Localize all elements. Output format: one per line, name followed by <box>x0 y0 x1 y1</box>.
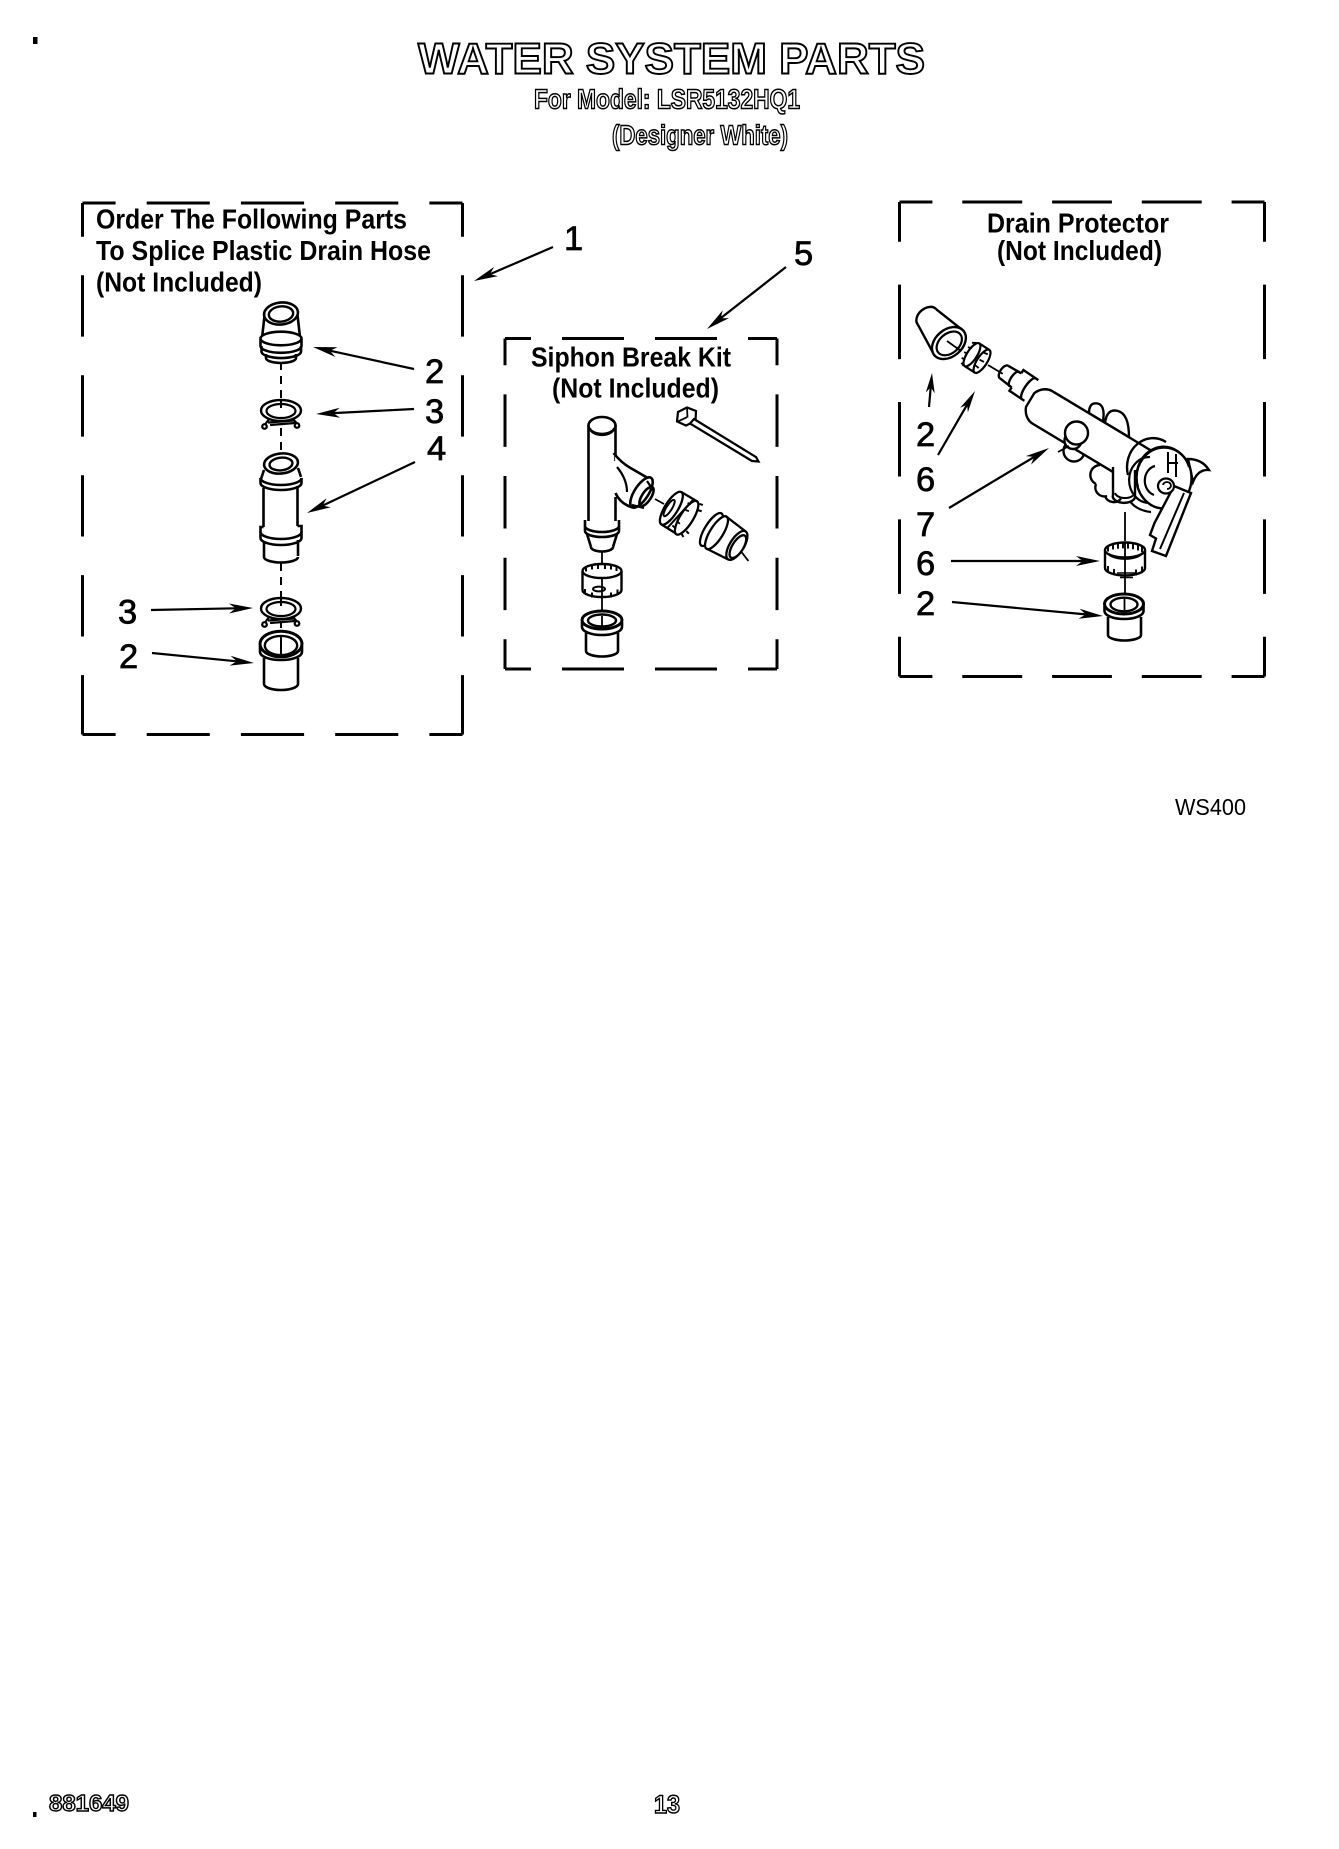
svg-text:7: 7 <box>916 506 935 544</box>
svg-text:For Model: LSR5132HQ1: For Model: LSR5132HQ1 <box>534 84 800 115</box>
svg-text:Order The Following Parts: Order The Following Parts <box>96 204 407 235</box>
svg-text:13: 13 <box>654 1791 680 1819</box>
svg-text:3: 3 <box>425 393 444 431</box>
svg-text:881649: 881649 <box>49 1790 129 1816</box>
svg-text:2: 2 <box>119 638 138 676</box>
svg-text:3: 3 <box>118 594 137 632</box>
svg-text:(Not Included): (Not Included) <box>997 235 1162 266</box>
svg-text:Drain Protector: Drain Protector <box>987 208 1169 239</box>
svg-text:(Not Included): (Not Included) <box>552 373 719 404</box>
svg-text:5: 5 <box>794 235 813 273</box>
svg-text:(Designer White): (Designer White) <box>612 120 788 151</box>
svg-text:Siphon Break Kit: Siphon Break Kit <box>531 342 731 373</box>
svg-text:(Not Included): (Not Included) <box>96 267 262 298</box>
svg-text:1: 1 <box>564 220 583 258</box>
svg-text:2: 2 <box>916 416 935 454</box>
svg-text:To Splice Plastic Drain Hose: To Splice Plastic Drain Hose <box>96 235 431 266</box>
svg-text:4: 4 <box>427 430 446 468</box>
svg-text:2: 2 <box>916 585 935 623</box>
svg-text:2: 2 <box>425 353 444 391</box>
svg-text:6: 6 <box>916 461 935 499</box>
svg-text:WS400: WS400 <box>1175 794 1246 820</box>
svg-text:6: 6 <box>916 545 935 583</box>
svg-text:WATER SYSTEM PARTS: WATER SYSTEM PARTS <box>418 36 925 84</box>
